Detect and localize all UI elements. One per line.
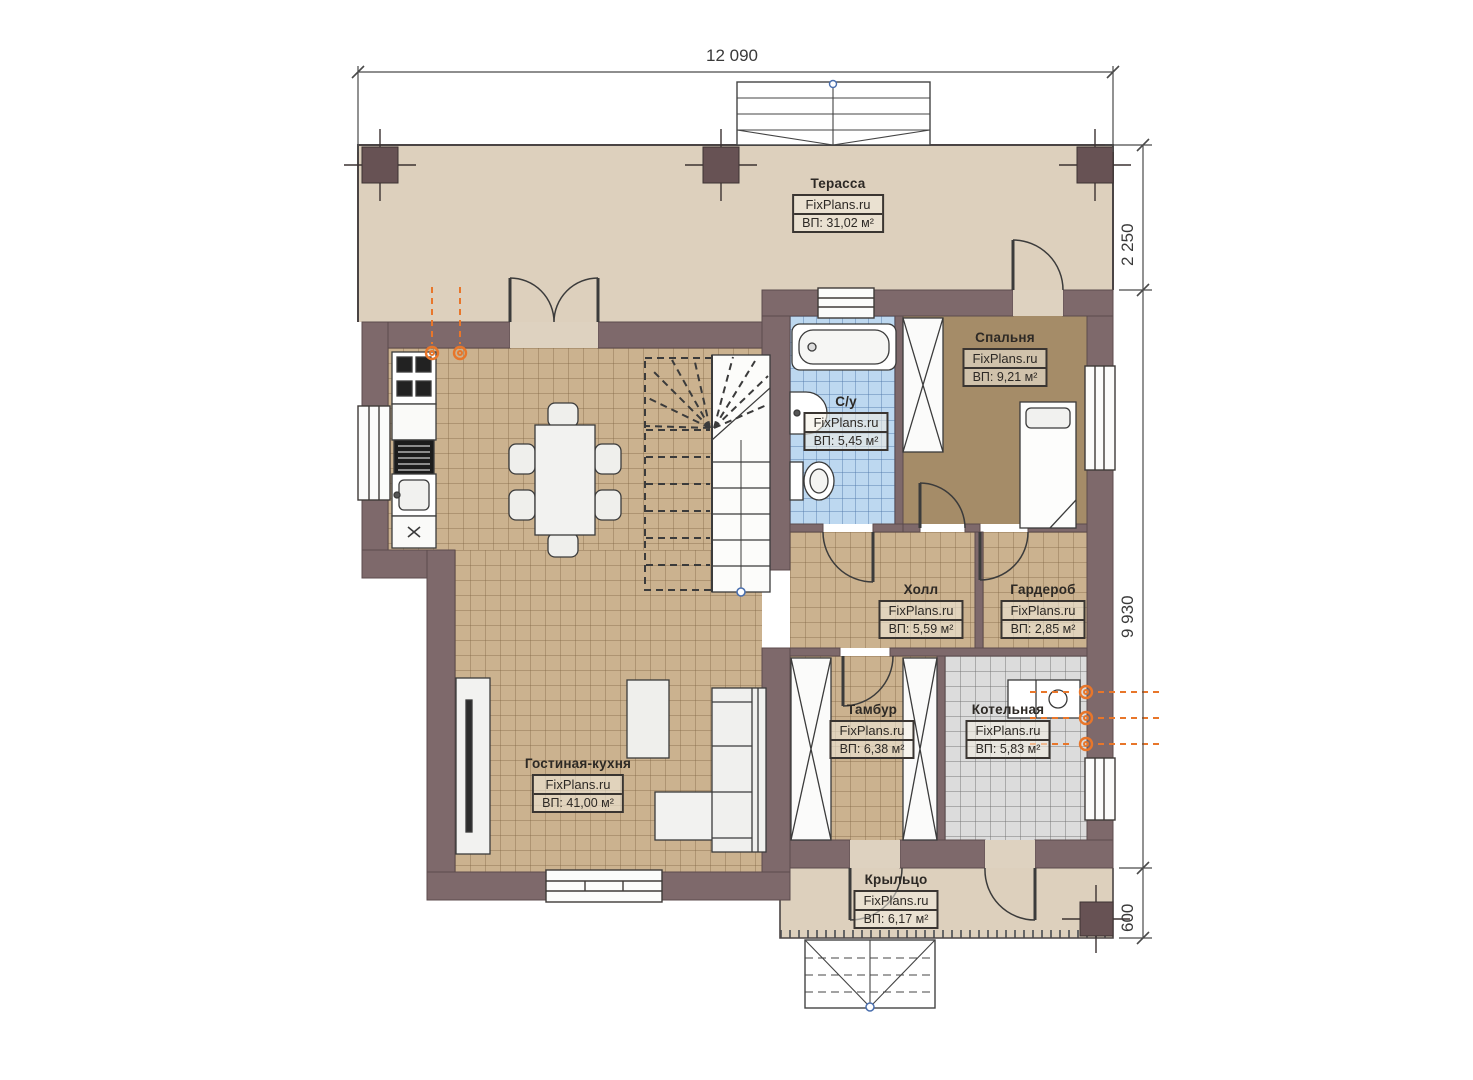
room-name: Гостиная-кухня [525, 756, 631, 771]
wall-segment [790, 524, 823, 532]
wall-segment [873, 524, 903, 532]
kitchen-cabinet [392, 404, 436, 440]
chair [548, 403, 578, 427]
porch-outline [780, 868, 1113, 938]
room-area: ВП: 6,38 м² [831, 741, 912, 757]
kitchen-sink [392, 474, 436, 516]
watermark: FixPlans.ru [794, 196, 882, 215]
wall-segment [937, 656, 945, 840]
watermark: FixPlans.ru [831, 722, 912, 741]
toilet [790, 462, 834, 500]
room-label-wardrobe: Гардероб FixPlans.ru ВП: 2,85 м² [1000, 582, 1085, 639]
chair [595, 444, 621, 474]
room-label-bathroom: С/у FixPlans.ru ВП: 5,45 м² [803, 394, 888, 451]
watermark: FixPlans.ru [805, 414, 886, 433]
room-label-terrace: Терасса FixPlans.ru ВП: 31,02 м² [792, 176, 884, 233]
dim-label-top: 12 090 [706, 46, 758, 66]
door-bedroom-terrace [1013, 240, 1063, 290]
label-box: FixPlans.ru ВП: 9,21 м² [962, 348, 1047, 387]
dim-label-right-top: 2 250 [1118, 168, 1138, 266]
coffee-table [655, 792, 713, 840]
room-label-bedroom: Спальня FixPlans.ru ВП: 9,21 м² [962, 330, 1047, 387]
dining-set [509, 403, 621, 557]
sofa [712, 688, 766, 852]
floor-plan: 12 090 2 250 9 930 600 Терасса FixPlans.… [0, 0, 1473, 1080]
label-box: FixPlans.ru ВП: 6,17 м² [853, 890, 938, 929]
room-name: Гардероб [1000, 582, 1085, 597]
room-label-vestibule: Тамбур FixPlans.ru ВП: 6,38 м² [829, 702, 914, 759]
room-name: С/у [803, 394, 888, 409]
stair-guide-node [737, 588, 745, 596]
room-area: ВП: 41,00 м² [534, 795, 622, 811]
door-bedroom [920, 483, 965, 528]
bedroom-closet [903, 318, 943, 452]
chair [595, 490, 621, 520]
wall-segment [598, 322, 762, 348]
dim-label-right-middle: 9 930 [1118, 538, 1138, 638]
wall-segment [660, 872, 790, 900]
threshold [510, 322, 598, 348]
dining-table [535, 425, 595, 535]
label-box: FixPlans.ru ВП: 31,02 м² [792, 194, 884, 233]
room-name: Терасса [792, 176, 884, 191]
door-wardrobe [980, 532, 1028, 580]
label-box: FixPlans.ru ВП: 5,45 м² [803, 412, 888, 451]
plan-linework [0, 0, 1473, 1080]
window-bathroom-top [818, 288, 874, 318]
watermark: FixPlans.ru [964, 350, 1045, 369]
vestibule-closet-left [791, 658, 831, 840]
staircase [645, 355, 770, 596]
watermark: FixPlans.ru [855, 892, 936, 911]
room-name: Тамбур [829, 702, 914, 717]
bed [1020, 402, 1076, 528]
wall-segment [965, 524, 980, 532]
window-boiler-right [1085, 758, 1115, 820]
wall-segment [790, 840, 850, 868]
bedroom-furniture [1020, 402, 1076, 528]
room-name: Холл [878, 582, 963, 597]
corner-cabinet [392, 516, 436, 548]
room-area: ВП: 5,59 м² [880, 621, 961, 637]
label-box: FixPlans.ru ВП: 6,38 м² [829, 720, 914, 759]
wall-segment [903, 524, 920, 532]
wall-segment [1063, 290, 1113, 316]
window-living-bottom [546, 870, 662, 902]
wall-segment [872, 290, 1013, 316]
bathtub [792, 324, 896, 370]
room-area: ВП: 5,83 м² [967, 741, 1048, 757]
room-area: ВП: 2,85 м² [1002, 621, 1083, 637]
watermark: FixPlans.ru [1002, 602, 1083, 621]
door-vestibule-hall [843, 656, 893, 706]
chair [509, 490, 535, 520]
room-label-boiler: Котельная FixPlans.ru ВП: 5,83 м² [965, 702, 1050, 759]
room-area: ВП: 9,21 м² [964, 369, 1045, 385]
tv-stand [456, 678, 490, 854]
wall-segment [762, 290, 820, 316]
room-area: ВП: 31,02 м² [794, 215, 882, 231]
wall-segment [900, 840, 985, 868]
room-label-living-kitchen: Гостиная-кухня FixPlans.ru ВП: 41,00 м² [525, 756, 631, 813]
room-area: ВП: 5,45 м² [805, 433, 886, 449]
dish-rack [394, 440, 434, 474]
label-box: FixPlans.ru ВП: 5,83 м² [965, 720, 1050, 759]
label-box: FixPlans.ru ВП: 41,00 м² [532, 774, 624, 813]
porch-steps [805, 940, 935, 1011]
wall-segment [790, 648, 840, 656]
watermark: FixPlans.ru [880, 602, 961, 621]
door-bathroom [823, 532, 873, 582]
threshold [850, 840, 900, 868]
terrace-steps [737, 81, 930, 146]
terrace-column [344, 129, 416, 201]
wall-segment [427, 872, 548, 900]
wall-segment [1087, 316, 1113, 368]
door-boiler-porch [985, 868, 1035, 920]
chair [548, 533, 578, 557]
wall-segment [362, 322, 388, 408]
threshold [985, 840, 1035, 868]
watermark: FixPlans.ru [534, 776, 622, 795]
dim-label-right-bottom: 600 [1118, 872, 1138, 932]
kitchen-units [392, 352, 436, 548]
room-label-hall: Холл FixPlans.ru ВП: 5,59 м² [878, 582, 963, 639]
wall-segment [427, 550, 455, 900]
room-name: Спальня [962, 330, 1047, 345]
door-terrace-french [510, 278, 598, 322]
stove [392, 352, 436, 404]
threshold [1013, 290, 1063, 316]
label-box: FixPlans.ru ВП: 5,59 м² [878, 600, 963, 639]
room-name: Крыльцо [853, 872, 938, 887]
room-area: ВП: 6,17 м² [855, 911, 936, 927]
watermark: FixPlans.ru [967, 722, 1048, 741]
wall-segment [890, 648, 1087, 656]
armchair [627, 680, 669, 758]
window-kitchen-left [358, 406, 390, 500]
chair [509, 444, 535, 474]
wall-segment [1035, 840, 1113, 868]
room-label-porch: Крыльцо FixPlans.ru ВП: 6,17 м² [853, 872, 938, 929]
window-bedroom-right [1085, 366, 1115, 470]
room-name: Котельная [965, 702, 1050, 717]
label-box: FixPlans.ru ВП: 2,85 м² [1000, 600, 1085, 639]
